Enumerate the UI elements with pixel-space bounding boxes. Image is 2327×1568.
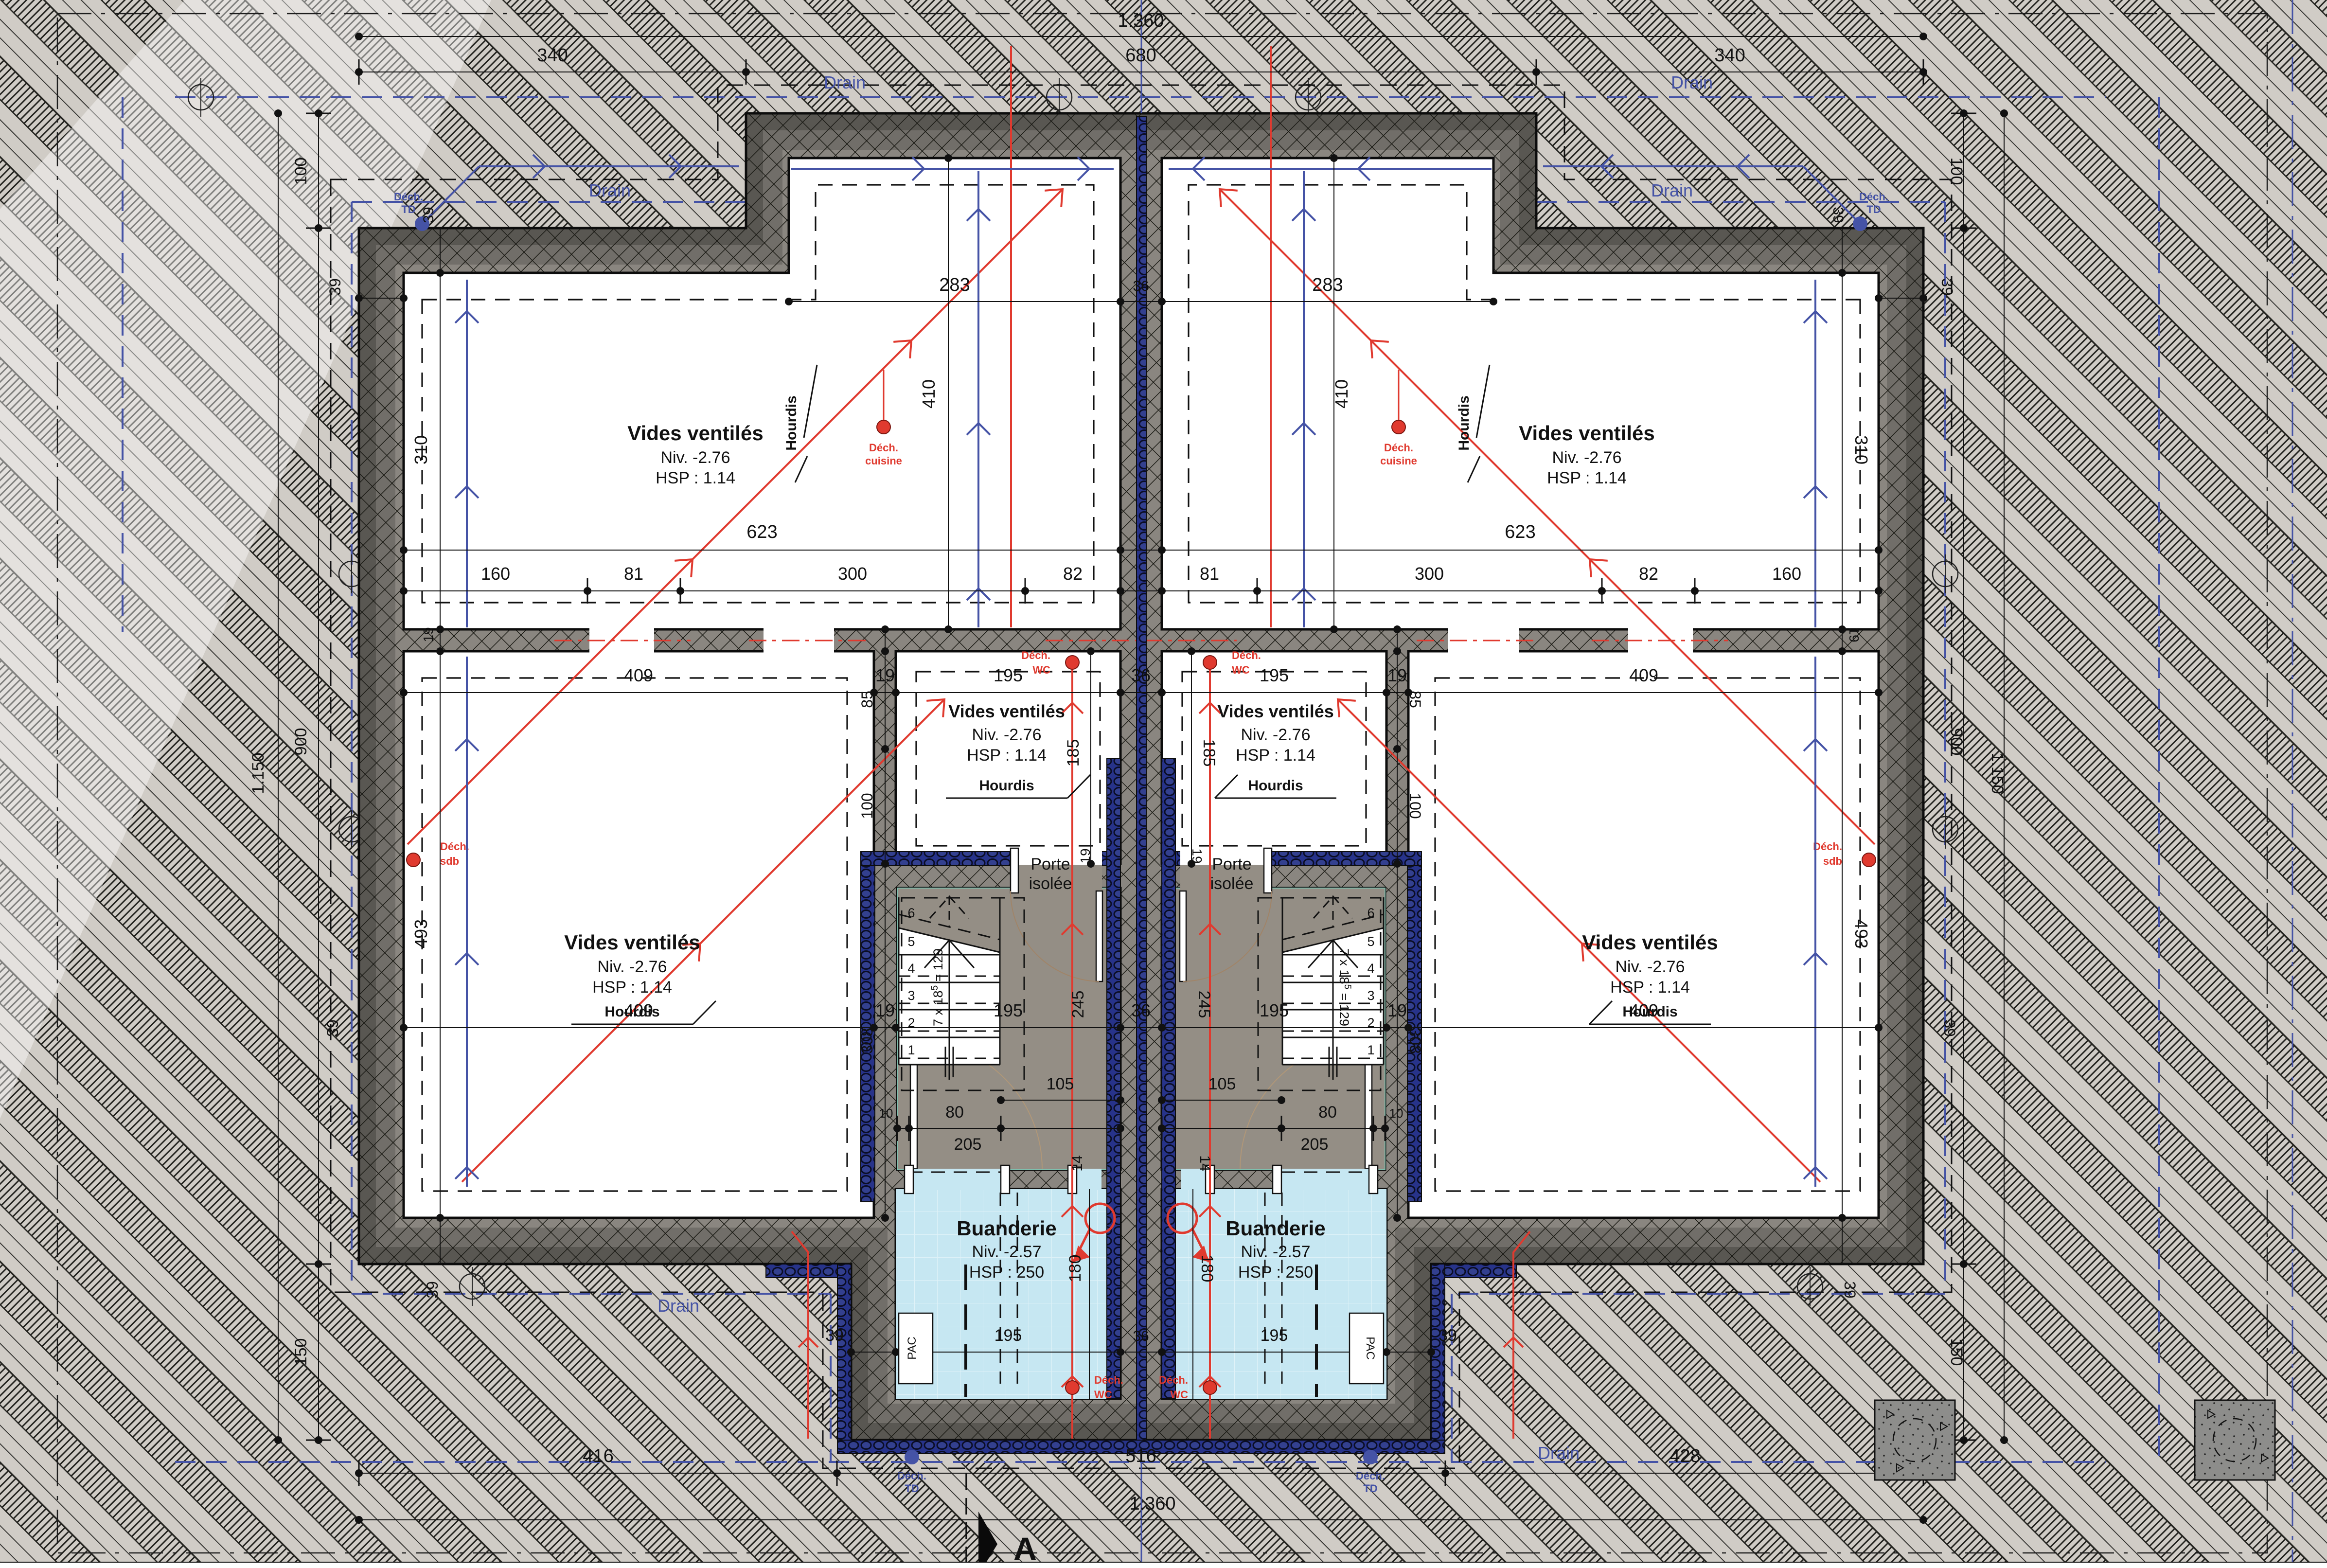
svg-text:410: 410 [1332, 379, 1351, 409]
svg-text:1.150: 1.150 [1988, 752, 2007, 794]
svg-text:100: 100 [858, 793, 876, 819]
svg-text:300: 300 [838, 564, 867, 584]
svg-text:4: 4 [907, 961, 915, 976]
svg-text:180: 180 [1198, 1255, 1216, 1283]
svg-text:283: 283 [939, 275, 970, 295]
svg-text:150: 150 [1947, 1338, 1966, 1366]
svg-text:4: 4 [1367, 961, 1374, 976]
svg-text:Niv. -2.76: Niv. -2.76 [598, 958, 667, 976]
svg-text:Hourdis: Hourdis [1248, 778, 1303, 794]
svg-text:308: 308 [858, 1028, 876, 1053]
svg-text:340: 340 [1714, 45, 1745, 66]
svg-text:Buanderie: Buanderie [957, 1217, 1056, 1240]
svg-text:195: 195 [994, 665, 1023, 685]
svg-text:Porte: Porte [1030, 855, 1070, 873]
svg-text:39: 39 [1841, 1281, 1859, 1299]
svg-text:14: 14 [1069, 1155, 1085, 1171]
svg-text:19: 19 [1078, 848, 1093, 863]
svg-text:6: 6 [907, 906, 915, 920]
svg-text:Niv. -2.76: Niv. -2.76 [661, 448, 730, 467]
svg-text:PAC: PAC [1364, 1336, 1377, 1360]
svg-text:Déch.: Déch. [1384, 442, 1413, 454]
svg-text:195: 195 [1260, 665, 1289, 685]
svg-text:1: 1 [1367, 1043, 1374, 1057]
svg-text:Buanderie: Buanderie [1226, 1217, 1325, 1240]
svg-text:HSP : 1.14: HSP : 1.14 [592, 978, 672, 997]
svg-text:Déch.: Déch. [1356, 1470, 1385, 1482]
svg-text:516: 516 [1125, 1446, 1156, 1466]
svg-text:205: 205 [1301, 1135, 1329, 1154]
svg-text:sdb: sdb [440, 855, 459, 867]
svg-text:185: 185 [1064, 739, 1083, 767]
svg-text:Vides ventilés: Vides ventilés [948, 701, 1065, 721]
svg-text:A: A [1013, 1531, 1037, 1567]
svg-text:Déch.: Déch. [440, 840, 469, 853]
svg-text:39: 39 [326, 278, 344, 296]
svg-text:283: 283 [1312, 275, 1343, 295]
svg-text:WC: WC [1032, 664, 1050, 676]
svg-text:36: 36 [1133, 1328, 1149, 1344]
svg-text:36: 36 [1133, 278, 1149, 294]
svg-text:Déch.: Déch. [1021, 649, 1050, 661]
svg-text:HSP : 250: HSP : 250 [1238, 1263, 1313, 1282]
svg-text:Niv. -2.76: Niv. -2.76 [1552, 448, 1622, 467]
svg-text:TD: TD [1866, 203, 1881, 215]
svg-text:10: 10 [879, 1106, 893, 1121]
svg-text:HSP : 1.14: HSP : 1.14 [1236, 746, 1315, 765]
svg-text:Drain: Drain [657, 1296, 699, 1316]
svg-text:Déch.: Déch. [1159, 1374, 1188, 1386]
svg-text:isolée: isolée [1029, 874, 1072, 893]
svg-text:160: 160 [1772, 564, 1801, 584]
svg-text:19: 19 [1387, 1000, 1407, 1020]
svg-text:cuisine: cuisine [1380, 455, 1417, 467]
svg-text:Déch.: Déch. [394, 191, 423, 203]
svg-text:Porte: Porte [1212, 855, 1251, 873]
svg-text:WC: WC [1094, 1389, 1112, 1401]
svg-text:Déch.: Déch. [1094, 1374, 1123, 1386]
svg-text:100: 100 [292, 158, 310, 185]
svg-text:39: 39 [424, 1281, 441, 1299]
svg-text:Déch.: Déch. [1232, 649, 1261, 661]
svg-text:19: 19 [1387, 665, 1407, 685]
svg-text:245: 245 [1069, 991, 1087, 1018]
svg-text:Vides ventilés: Vides ventilés [1519, 422, 1654, 445]
svg-text:3: 3 [907, 988, 915, 1003]
svg-text:410: 410 [919, 379, 939, 409]
svg-text:623: 623 [746, 522, 777, 542]
svg-text:39: 39 [1830, 207, 1846, 223]
svg-text:493: 493 [411, 919, 431, 948]
svg-text:Vides ventilés: Vides ventilés [1217, 701, 1333, 721]
svg-text:Hourdis: Hourdis [1456, 395, 1472, 450]
svg-text:TD: TD [401, 203, 415, 215]
svg-text:5: 5 [907, 934, 915, 949]
svg-text:Drain: Drain [589, 180, 631, 200]
svg-text:340: 340 [537, 45, 568, 66]
svg-text:39: 39 [1941, 1019, 1958, 1037]
svg-text:14: 14 [1197, 1155, 1213, 1171]
svg-text:HSP : 1.14: HSP : 1.14 [1610, 978, 1690, 997]
svg-text:5: 5 [1367, 934, 1374, 949]
svg-text:308: 308 [1406, 1028, 1424, 1053]
svg-text:Drain: Drain [1651, 180, 1693, 200]
svg-text:19: 19 [1190, 848, 1205, 863]
svg-text:310: 310 [411, 435, 431, 464]
svg-text:19: 19 [875, 665, 895, 685]
svg-text:80: 80 [1318, 1103, 1337, 1122]
svg-text:39: 39 [1439, 1326, 1457, 1345]
svg-text:Déch.: Déch. [897, 1470, 926, 1482]
svg-text:409: 409 [1629, 665, 1658, 685]
svg-text:1: 1 [907, 1043, 915, 1057]
svg-text:493: 493 [1851, 919, 1871, 948]
svg-text:19: 19 [421, 627, 436, 642]
svg-text:39: 39 [324, 1019, 341, 1037]
svg-text:82: 82 [1063, 564, 1083, 584]
svg-text:19: 19 [875, 1000, 895, 1020]
svg-text:10: 10 [1389, 1106, 1403, 1121]
svg-text:300: 300 [1415, 564, 1444, 584]
svg-text:WC: WC [1232, 664, 1250, 676]
svg-text:180: 180 [1066, 1255, 1084, 1283]
svg-text:HSP : 1.14: HSP : 1.14 [656, 469, 735, 487]
svg-text:310: 310 [1851, 435, 1871, 464]
svg-text:WC: WC [1170, 1389, 1188, 1401]
svg-text:205: 205 [954, 1135, 982, 1154]
svg-text:3: 3 [1367, 988, 1374, 1003]
svg-text:195: 195 [994, 1000, 1023, 1020]
svg-text:Drain: Drain [1538, 1443, 1580, 1463]
svg-text:428: 428 [1670, 1446, 1700, 1466]
svg-text:900: 900 [292, 728, 310, 756]
svg-text:Niv. -2.76: Niv. -2.76 [1616, 958, 1685, 976]
svg-text:39: 39 [1938, 278, 1956, 296]
svg-text:isolée: isolée [1210, 874, 1254, 893]
svg-text:81: 81 [1200, 564, 1219, 584]
svg-text:100: 100 [1947, 158, 1966, 185]
svg-text:Vides ventilés: Vides ventilés [564, 931, 700, 954]
svg-text:Déch.: Déch. [869, 442, 898, 454]
svg-text:39: 39 [421, 207, 437, 223]
svg-text:160: 160 [481, 564, 510, 584]
svg-text:82: 82 [1639, 564, 1658, 584]
svg-text:900: 900 [1947, 728, 1966, 756]
svg-text:Hourdis: Hourdis [604, 1004, 659, 1020]
svg-text:HSP : 250: HSP : 250 [969, 1263, 1044, 1282]
svg-text:Déch.: Déch. [1813, 840, 1842, 853]
svg-text:Niv. -2.57: Niv. -2.57 [1241, 1243, 1311, 1261]
svg-text:Vides ventilés: Vides ventilés [627, 422, 763, 445]
svg-text:TD: TD [905, 1482, 919, 1495]
svg-text:cuisine: cuisine [865, 455, 902, 467]
svg-text:195: 195 [995, 1326, 1022, 1345]
svg-text:Vides ventilés: Vides ventilés [1582, 931, 1718, 954]
svg-text:416: 416 [583, 1446, 613, 1466]
svg-text:19: 19 [1847, 627, 1862, 642]
svg-text:Niv. -2.76: Niv. -2.76 [972, 726, 1042, 744]
svg-text:195: 195 [1260, 1000, 1289, 1020]
svg-text:245: 245 [1195, 991, 1213, 1018]
svg-text:680: 680 [1125, 45, 1156, 66]
svg-text:TD: TD [1363, 1482, 1377, 1495]
svg-text:Hourdis: Hourdis [783, 395, 799, 450]
svg-text:1.150: 1.150 [249, 752, 267, 794]
svg-text:36: 36 [1131, 665, 1151, 685]
svg-text:623: 623 [1505, 522, 1535, 542]
svg-text:80: 80 [945, 1103, 964, 1122]
svg-text:105: 105 [1047, 1075, 1074, 1093]
svg-text:Drain: Drain [824, 72, 866, 92]
svg-text:1.360: 1.360 [1118, 11, 1164, 31]
svg-text:1.360: 1.360 [1129, 1494, 1175, 1514]
svg-text:Hourdis: Hourdis [1622, 1004, 1677, 1020]
svg-text:HSP : 1.14: HSP : 1.14 [967, 746, 1047, 765]
svg-text:195: 195 [1261, 1326, 1288, 1345]
svg-text:36: 36 [1131, 1000, 1151, 1020]
svg-text:6: 6 [1367, 906, 1374, 920]
svg-text:39: 39 [825, 1326, 844, 1345]
svg-text:Hourdis: Hourdis [979, 778, 1034, 794]
svg-text:Déch.: Déch. [1859, 191, 1888, 203]
svg-text:Niv. -2.76: Niv. -2.76 [1241, 726, 1311, 744]
svg-text:81: 81 [624, 564, 643, 584]
svg-text:105: 105 [1208, 1075, 1236, 1093]
svg-text:100: 100 [1406, 793, 1424, 819]
svg-text:185: 185 [1200, 739, 1218, 767]
svg-text:HSP : 1.14: HSP : 1.14 [1547, 469, 1627, 487]
svg-text:Niv. -2.57: Niv. -2.57 [972, 1243, 1042, 1261]
svg-text:Drain: Drain [1671, 72, 1713, 92]
svg-text:409: 409 [624, 665, 653, 685]
svg-text:sdb: sdb [1823, 855, 1842, 867]
svg-text:150: 150 [292, 1338, 310, 1366]
svg-text:PAC: PAC [906, 1336, 919, 1360]
